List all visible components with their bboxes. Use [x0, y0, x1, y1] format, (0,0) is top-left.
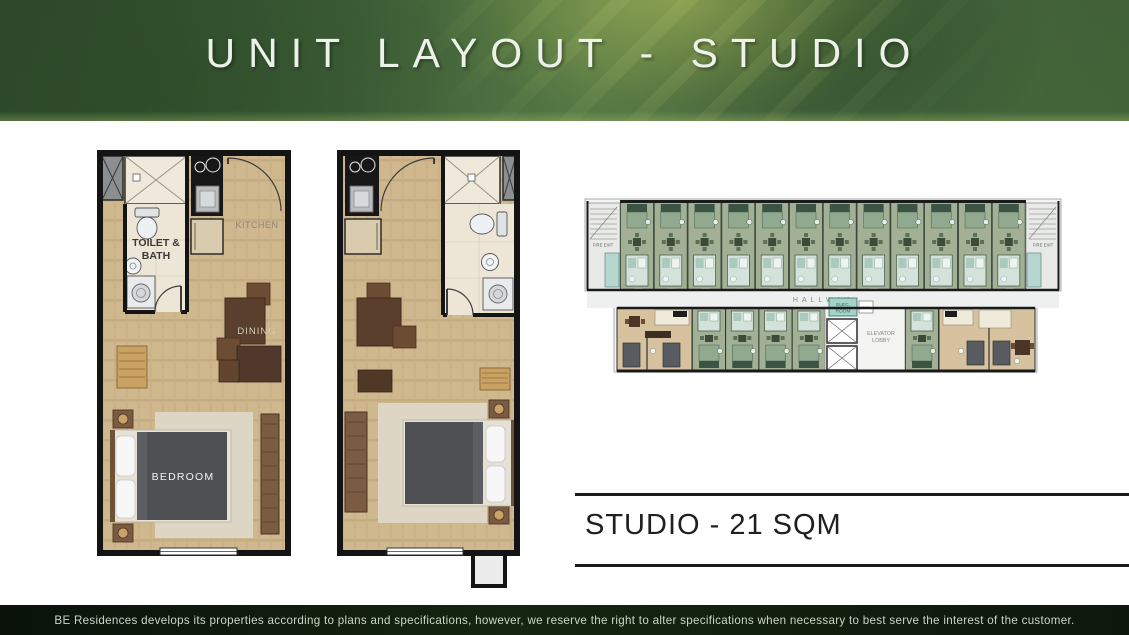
kitchen-counter: [191, 156, 223, 216]
fire-exit-label-left: FIRE EXIT: [593, 243, 614, 248]
tan-unit-left: [617, 308, 692, 371]
bench-cabinet: [117, 346, 147, 388]
kitchen-counter: [345, 156, 379, 216]
kitchen-label: KITCHEN: [235, 220, 278, 230]
dining-label: DINING: [237, 326, 276, 337]
toilet-bath-label-line2: BATH: [142, 250, 170, 262]
bedroom-label: BEDROOM: [152, 471, 215, 483]
unit-floorplan-mirrored: [337, 150, 520, 590]
bedside-table: [113, 410, 133, 428]
toilet-fixture: [470, 212, 507, 236]
window: [387, 548, 463, 555]
window: [160, 548, 237, 555]
wardrobe: [345, 412, 367, 512]
shower-drain: [133, 174, 140, 181]
refrigerator: [191, 219, 223, 254]
bath-sink: [482, 254, 499, 271]
disclaimer-text: BE Residences develops its properties ac…: [54, 614, 1074, 627]
bottom-unit-single: [905, 308, 938, 371]
bedside-table: [489, 506, 509, 524]
bedside-table: [113, 524, 133, 542]
cabinet: [358, 370, 392, 392]
unit-size-label: STUDIO - 21 SQM: [585, 509, 842, 542]
bottom-unit-group-left: [692, 308, 825, 371]
elec-room-label-line2: ROOM: [836, 309, 851, 315]
toilet-fixture: [135, 208, 159, 239]
ac-ledge: [102, 156, 123, 200]
refrigerator: [345, 219, 381, 254]
slide: UNIT LAYOUT - STUDIO: [0, 0, 1129, 635]
top-unit-row: [620, 201, 1025, 291]
washer: [483, 278, 513, 310]
toilet-bath-label-line1: TOILET &: [132, 237, 180, 249]
bath-sink: [125, 258, 141, 274]
divider-line-top: [575, 493, 1129, 496]
washer: [127, 276, 155, 308]
header-banner: UNIT LAYOUT - STUDIO: [0, 0, 1129, 121]
wardrobe: [261, 414, 279, 534]
bed: [403, 420, 516, 506]
tan-unit-right: [939, 308, 1035, 371]
bench-cabinet: [480, 368, 510, 390]
unit-floorplan-labelled: TOILET & BATH KITCHEN DINING: [97, 150, 291, 556]
elevator-lobby-label-line2: LOBBY: [872, 338, 890, 344]
typical-floor-plate: FIRE EXIT FIRE EXIT HALLWAY: [583, 195, 1063, 375]
bedside-table: [489, 400, 509, 418]
divider-line-bottom: [575, 564, 1129, 567]
elevator-lobby-label-line1: ELEVATOR: [867, 331, 895, 337]
footer-bar: BE Residences develops its properties ac…: [0, 605, 1129, 635]
page-title: UNIT LAYOUT - STUDIO: [0, 30, 1129, 77]
fire-exit-label-right: FIRE EXIT: [1033, 243, 1054, 248]
shower-drain: [468, 174, 475, 181]
ledge-tab: [473, 554, 505, 586]
